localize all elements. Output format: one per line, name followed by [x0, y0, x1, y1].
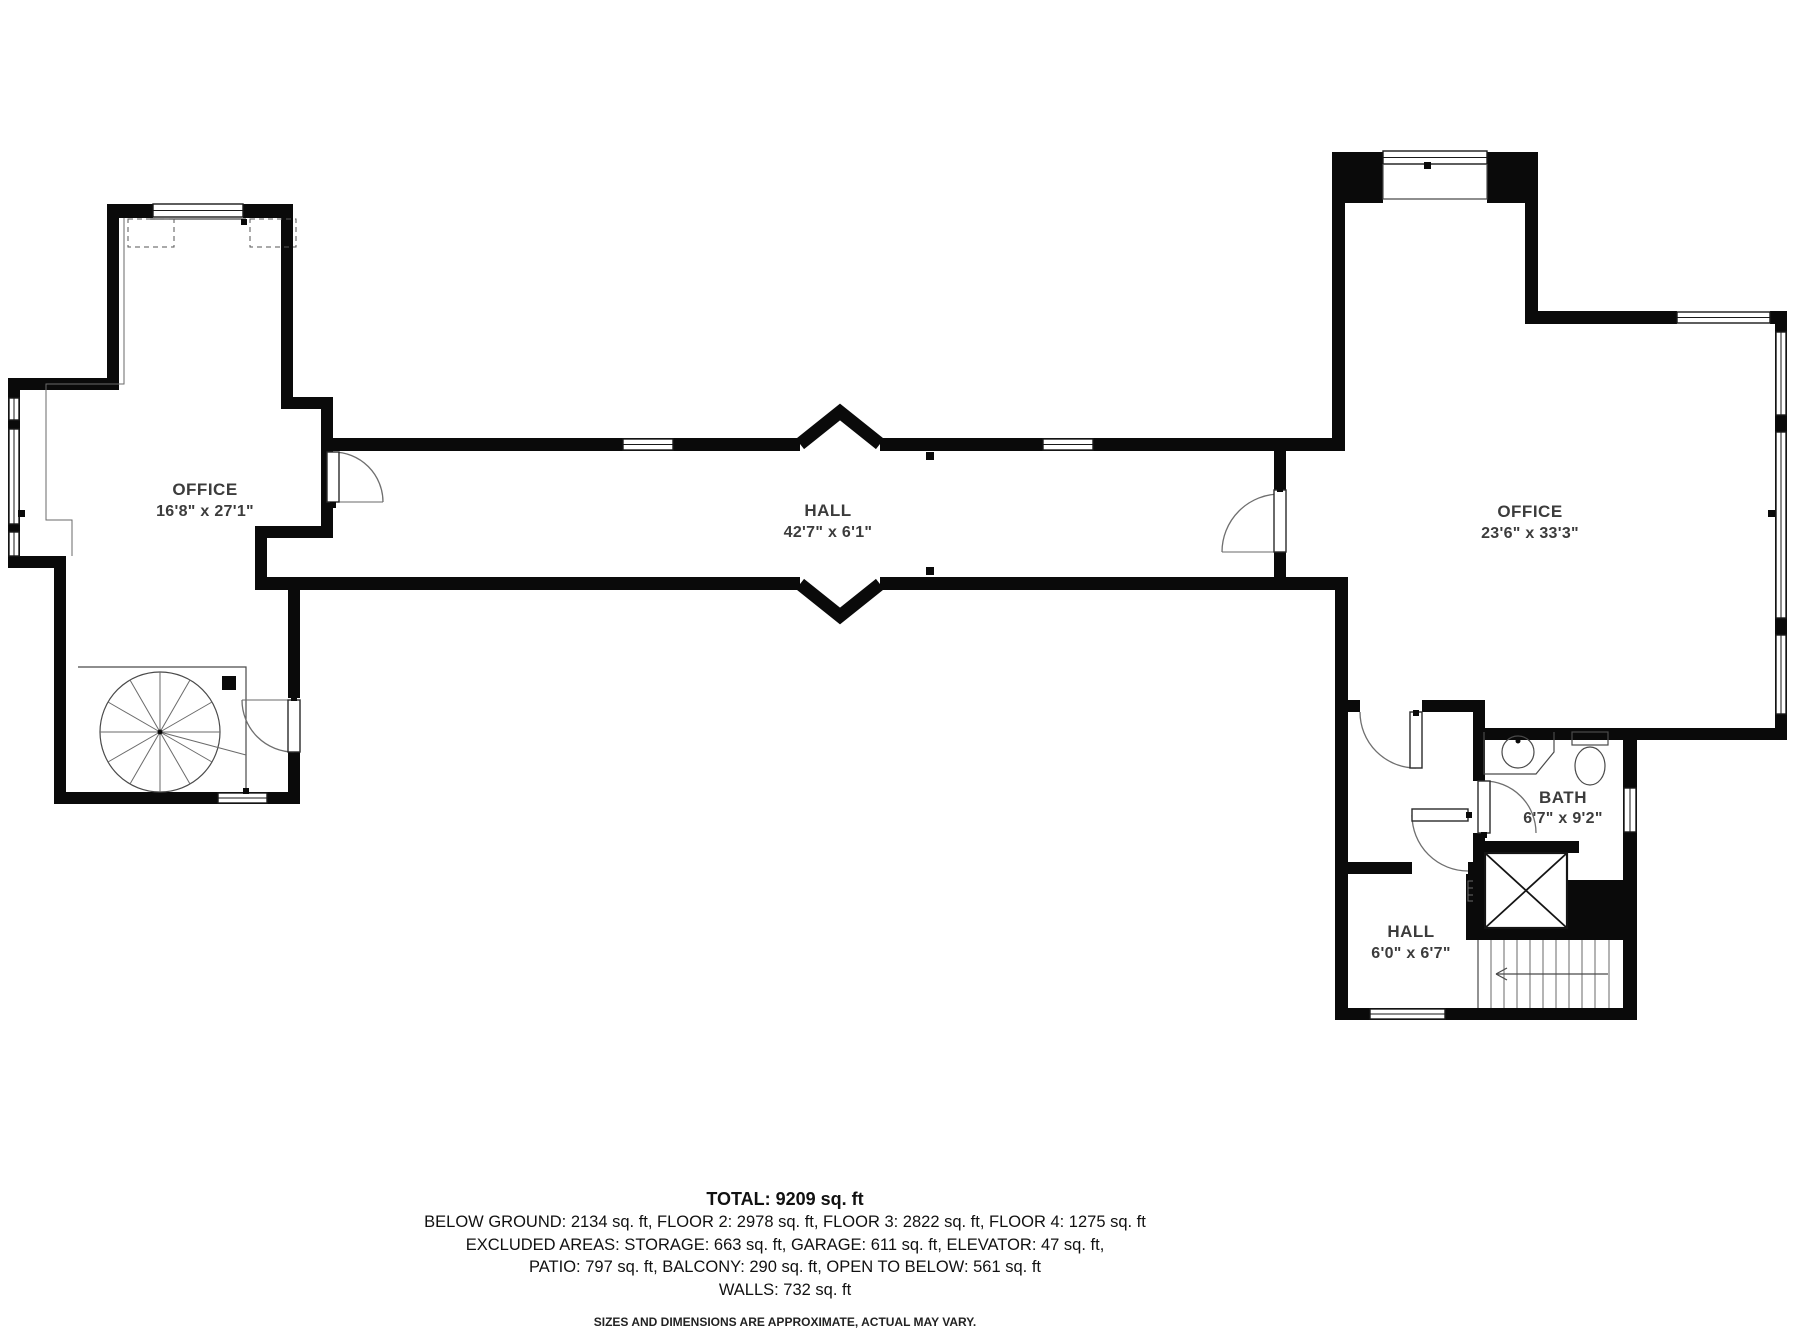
- room-office-right: OFFICE 23'6" x 33'3": [1481, 502, 1579, 542]
- hall-walls: [255, 412, 1348, 616]
- room-dims: 16'8" x 27'1": [156, 503, 254, 520]
- walls-area-line: WALLS: 732 sq. ft: [0, 1279, 1570, 1302]
- floor-plan-svg: OFFICE 16'8" x 27'1" HALL 42'7" x 6'1" O…: [0, 0, 1800, 1328]
- room-label: HALL: [1387, 922, 1434, 941]
- excluded-areas-line: EXCLUDED AREAS: STORAGE: 663 sq. ft, GAR…: [0, 1234, 1570, 1257]
- left-office-closet-dashes: [128, 219, 296, 247]
- spiral-staircase: [78, 667, 246, 792]
- disclaimer-line: SIZES AND DIMENSIONS ARE APPROXIMATE, AC…: [0, 1315, 1570, 1328]
- door-arc: [1412, 809, 1468, 871]
- room-bath: BATH 6'7" x 9'2": [1523, 788, 1602, 827]
- door-arc: [1222, 490, 1286, 552]
- room-label: OFFICE: [1497, 502, 1562, 521]
- door-arc: [327, 452, 383, 502]
- room-dims: 42'7" x 6'1": [784, 524, 873, 541]
- room-dims: 6'0" x 6'7": [1371, 945, 1450, 962]
- floors-area-line: BELOW GROUND: 2134 sq. ft, FLOOR 2: 2978…: [0, 1211, 1570, 1234]
- room-label: OFFICE: [172, 480, 237, 499]
- door-arc: [242, 700, 300, 752]
- room-hall-main: HALL 42'7" x 6'1": [784, 501, 873, 541]
- elevator: [1473, 841, 1637, 940]
- room-label: HALL: [804, 501, 851, 520]
- room-label: BATH: [1539, 788, 1587, 807]
- door-arc: [1360, 712, 1422, 768]
- room-office-left: OFFICE 16'8" x 27'1": [156, 480, 254, 520]
- structural-column: [222, 676, 236, 690]
- floor-plan-page: OFFICE 16'8" x 27'1" HALL 42'7" x 6'1" O…: [0, 0, 1800, 1328]
- area-summary: TOTAL: 9209 sq. ft BELOW GROUND: 2134 sq…: [0, 1188, 1570, 1328]
- stair-direction-arrow: [1496, 968, 1608, 980]
- room-dims: 6'7" x 9'2": [1523, 810, 1602, 827]
- patio-balcony-line: PATIO: 797 sq. ft, BALCONY: 290 sq. ft, …: [0, 1256, 1570, 1279]
- room-hall-small: HALL 6'0" x 6'7": [1371, 922, 1450, 962]
- total-area-line: TOTAL: 9209 sq. ft: [0, 1188, 1570, 1211]
- room-dims: 23'6" x 33'3": [1481, 525, 1579, 542]
- straight-staircase: [1478, 940, 1609, 1008]
